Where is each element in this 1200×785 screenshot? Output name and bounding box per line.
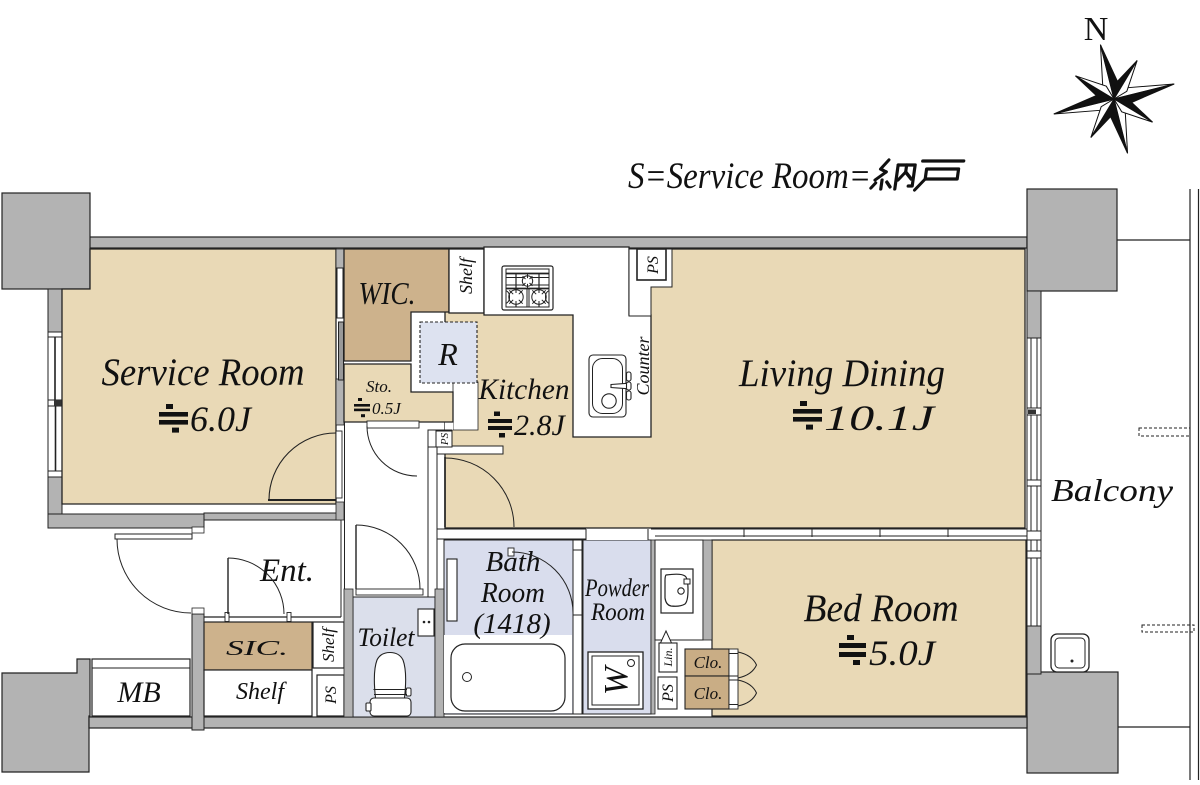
svg-text:PS: PS [645, 256, 662, 275]
svg-text:Counter: Counter [633, 336, 653, 396]
svg-text:Lin.: Lin. [661, 647, 675, 667]
svg-text:Ent.: Ent. [259, 553, 314, 589]
svg-text:Shelf: Shelf [236, 679, 287, 705]
svg-text:PS: PS [439, 432, 451, 446]
svg-text:Room: Room [480, 577, 545, 609]
svg-text:SIC.: SIC. [226, 636, 288, 660]
svg-text:Bed Room: Bed Room [804, 587, 959, 630]
svg-text:W: W [598, 664, 635, 695]
svg-text:10.1J: 10.1J [824, 398, 937, 438]
svg-text:R: R [437, 336, 458, 372]
svg-text:5.0J: 5.0J [869, 633, 937, 673]
svg-text:Balcony: Balcony [1051, 472, 1174, 508]
svg-text:MB: MB [116, 676, 160, 709]
svg-text:0.5J: 0.5J [372, 399, 402, 418]
svg-text:2.8J: 2.8J [514, 409, 567, 442]
svg-text:Sto.: Sto. [366, 377, 392, 396]
svg-text:PS: PS [323, 686, 340, 705]
svg-text:Shelf: Shelf [319, 626, 338, 662]
svg-text:Kitchen: Kitchen [478, 373, 570, 406]
svg-text:Clo.: Clo. [694, 653, 723, 672]
svg-text:(1418): (1418) [473, 608, 550, 640]
svg-text:Clo.: Clo. [694, 684, 723, 703]
svg-text:Room: Room [590, 599, 645, 626]
svg-text:Toilet: Toilet [358, 623, 416, 652]
svg-text:WIC.: WIC. [359, 275, 416, 311]
svg-text:Service Room: Service Room [102, 351, 305, 394]
svg-text:Powder: Powder [584, 575, 649, 602]
svg-text:N: N [1084, 11, 1109, 48]
svg-text:Living Dining: Living Dining [738, 352, 945, 395]
svg-text:S=Service Room=: S=Service Room= [628, 156, 871, 197]
svg-text:6.0J: 6.0J [190, 399, 253, 439]
svg-text:PS: PS [660, 684, 677, 703]
svg-text:Shelf: Shelf [456, 255, 476, 294]
